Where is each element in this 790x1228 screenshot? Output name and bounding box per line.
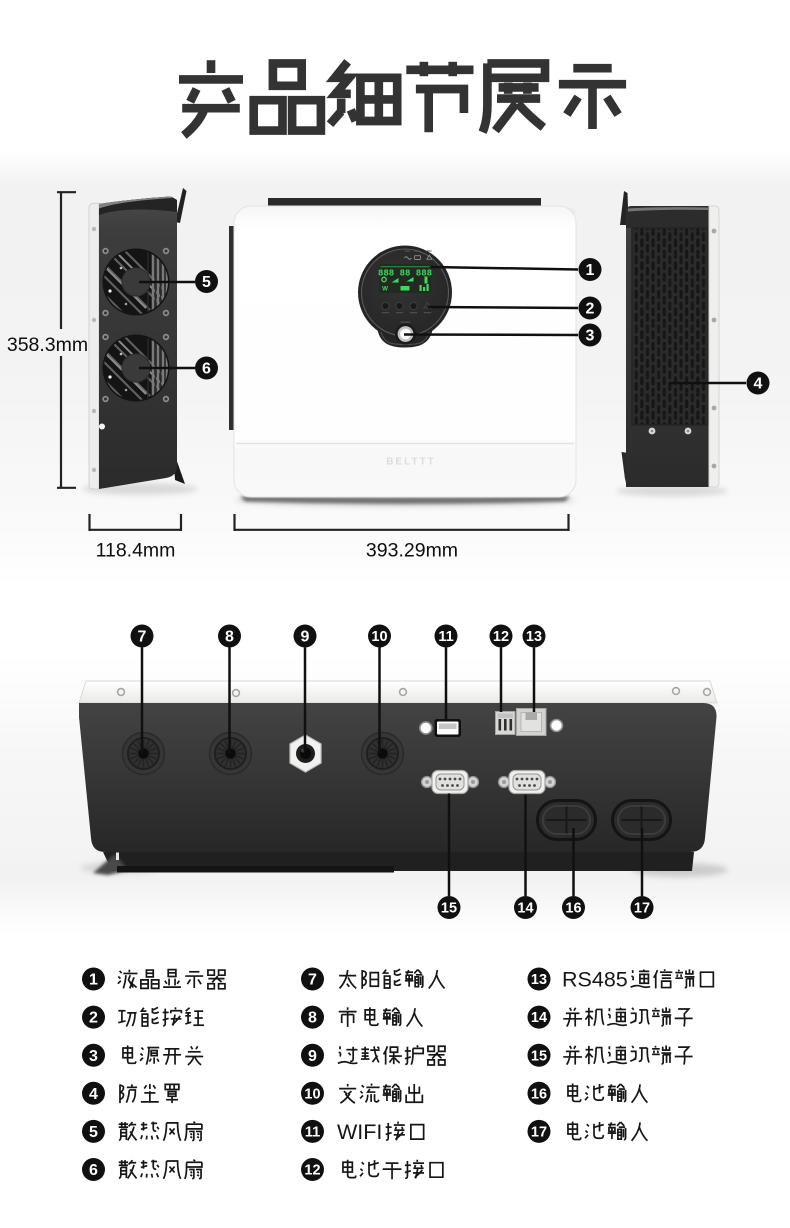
svg-text:RS485: RS485 [562, 968, 628, 992]
svg-text:14: 14 [531, 1010, 547, 1026]
svg-text:WIFI: WIFI [337, 1120, 382, 1144]
svg-text:8: 8 [308, 1010, 317, 1027]
svg-text:14: 14 [517, 901, 533, 917]
svg-text:15: 15 [531, 1048, 547, 1064]
svg-text:17: 17 [531, 1124, 547, 1140]
svg-text:17: 17 [634, 901, 650, 917]
svg-text:10: 10 [371, 629, 387, 645]
svg-text:888 88 888: 888 88 888 [378, 268, 432, 278]
svg-text:13: 13 [526, 629, 542, 645]
svg-text:12: 12 [304, 1163, 320, 1179]
svg-text:3: 3 [586, 328, 595, 345]
svg-text:1: 1 [586, 262, 595, 279]
svg-text:9: 9 [301, 629, 310, 646]
svg-text:11: 11 [305, 1124, 320, 1140]
svg-text:2: 2 [89, 1010, 98, 1027]
svg-text:9: 9 [308, 1048, 317, 1065]
svg-text:5: 5 [202, 274, 211, 291]
svg-text:4: 4 [754, 376, 763, 393]
svg-text:BELTTT: BELTTT [386, 457, 436, 468]
svg-text:11: 11 [438, 629, 453, 645]
svg-text:7: 7 [308, 972, 317, 989]
svg-text:16: 16 [565, 901, 581, 917]
svg-text:12: 12 [493, 629, 509, 645]
svg-text:393.29mm: 393.29mm [366, 540, 458, 562]
svg-text:6: 6 [202, 361, 211, 378]
svg-text:4: 4 [89, 1086, 98, 1103]
svg-text:15: 15 [441, 901, 457, 917]
svg-text:3: 3 [89, 1048, 98, 1065]
svg-text:6: 6 [89, 1162, 98, 1179]
svg-text:7: 7 [138, 629, 147, 646]
svg-text:358.3mm: 358.3mm [7, 334, 88, 356]
svg-text:W: W [382, 286, 388, 293]
svg-text:13: 13 [531, 972, 547, 988]
svg-text:2: 2 [586, 301, 595, 318]
svg-text:118.4mm: 118.4mm [96, 540, 176, 562]
svg-text:16: 16 [531, 1086, 547, 1102]
svg-text:5: 5 [89, 1124, 98, 1141]
svg-text:10: 10 [304, 1086, 320, 1102]
svg-text:1: 1 [89, 972, 98, 989]
svg-text:8: 8 [225, 629, 234, 646]
